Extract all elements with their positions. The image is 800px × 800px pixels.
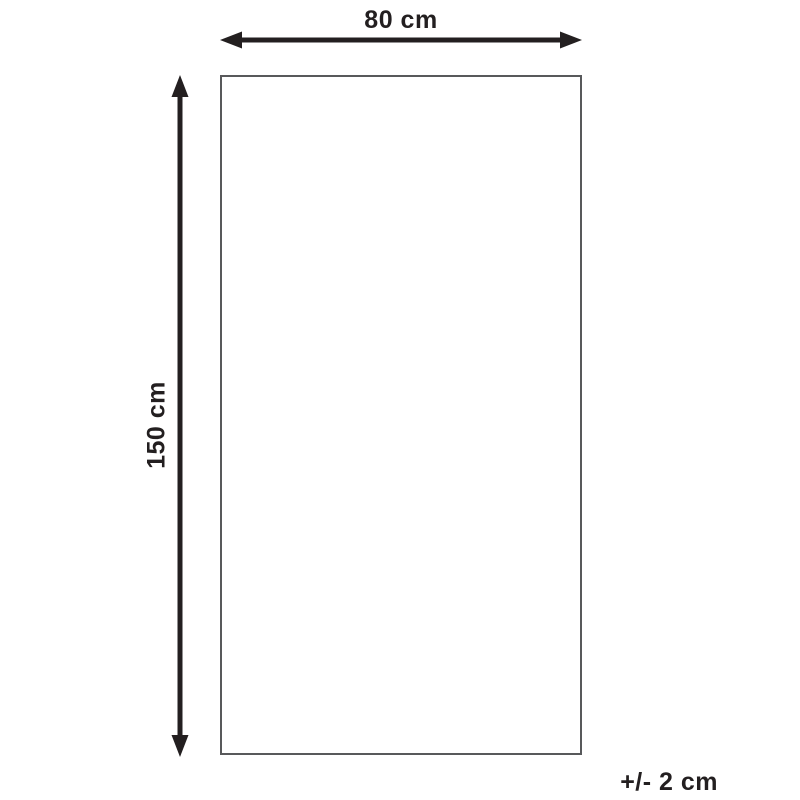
- tolerance-label: +/- 2 cm: [620, 768, 718, 797]
- height-dimension-label: 150 cm: [143, 381, 172, 469]
- product-outline-rect: [220, 75, 582, 755]
- arrowhead-down-icon: [172, 735, 189, 757]
- vertical-dimension-arrow: [168, 74, 192, 758]
- arrowhead-up-icon: [172, 75, 189, 97]
- width-dimension-label: 80 cm: [220, 6, 582, 35]
- dimension-diagram: 80 cm 150 cm +/- 2 cm: [0, 0, 800, 800]
